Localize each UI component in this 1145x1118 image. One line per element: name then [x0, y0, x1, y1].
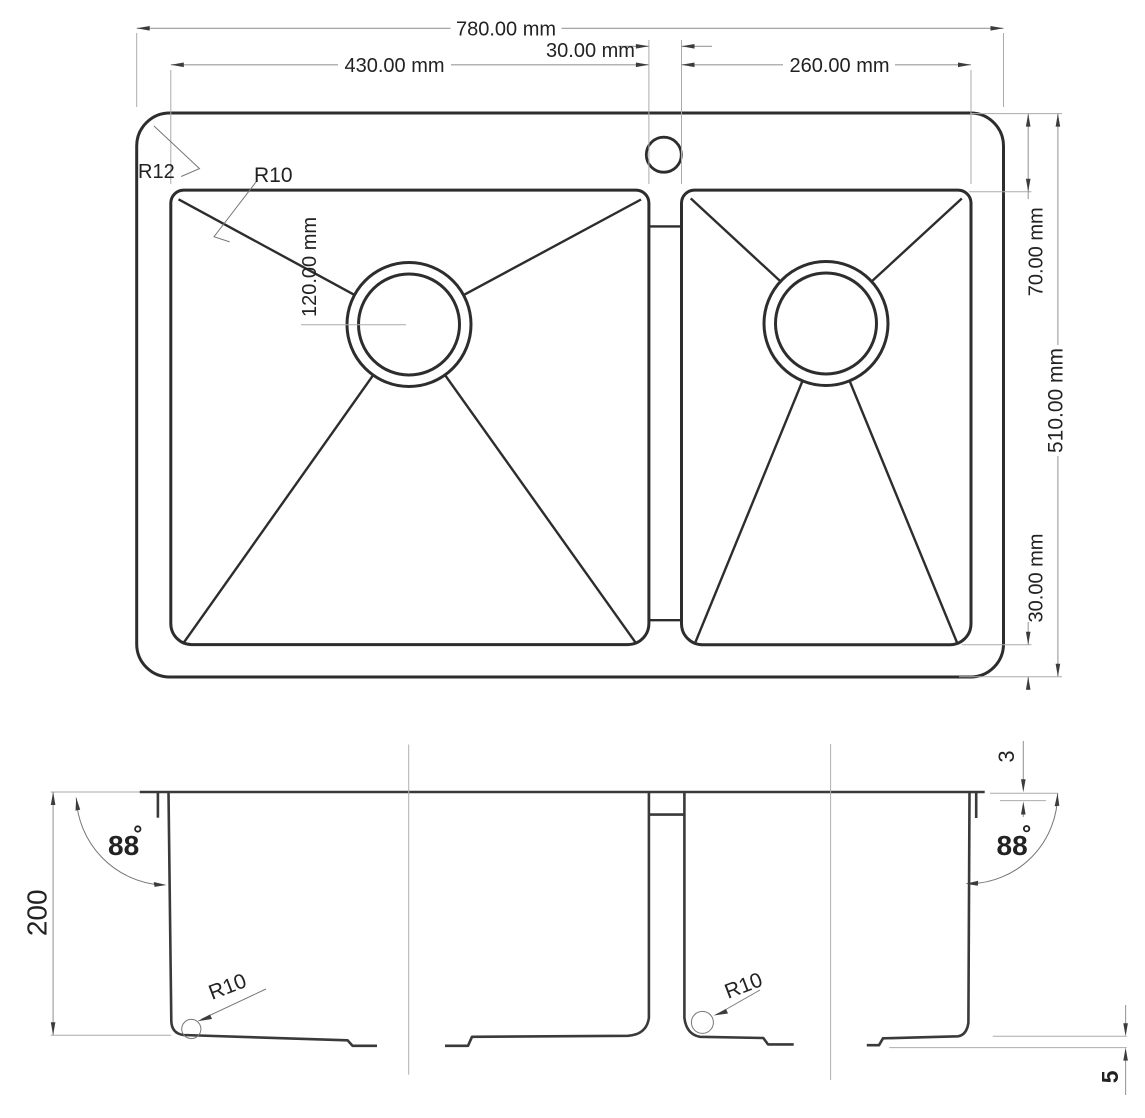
svg-text:R12: R12 [138, 161, 175, 183]
svg-text:5: 5 [1097, 1070, 1123, 1083]
svg-text:30.00 mm: 30.00 mm [546, 40, 635, 62]
svg-text:88: 88 [108, 830, 139, 861]
svg-text:780.00 mm: 780.00 mm [456, 19, 556, 41]
svg-text:120.00 mm: 120.00 mm [299, 217, 321, 317]
svg-text:430.00 mm: 430.00 mm [344, 55, 444, 77]
svg-text:200: 200 [22, 889, 53, 936]
svg-text:R10: R10 [254, 164, 293, 187]
svg-text:510.00 mm: 510.00 mm [1045, 348, 1068, 453]
svg-text:3: 3 [994, 750, 1019, 762]
svg-text:30.00 mm: 30.00 mm [1026, 534, 1048, 623]
svg-text:88: 88 [997, 830, 1028, 861]
svg-text:260.00 mm: 260.00 mm [789, 55, 889, 77]
svg-text:70.00 mm: 70.00 mm [1026, 207, 1048, 296]
